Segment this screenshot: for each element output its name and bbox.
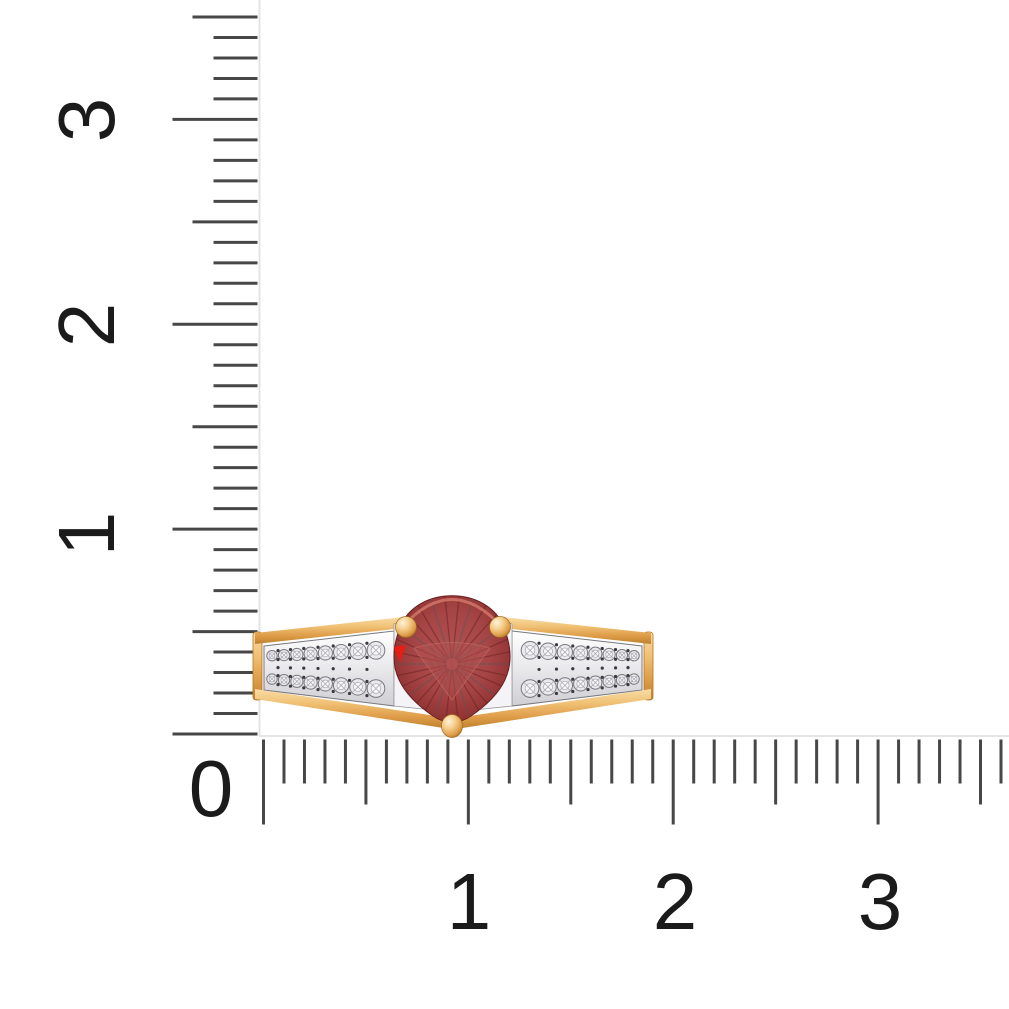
- pave-bead: [348, 667, 351, 670]
- pave-bead: [586, 657, 589, 660]
- prong-top-right: [490, 617, 511, 638]
- pave-bead: [571, 657, 574, 660]
- pave-bead: [365, 642, 368, 645]
- pave-bead: [348, 692, 351, 695]
- pave-bead: [555, 656, 558, 659]
- ruler-label-vertical-3: 3: [47, 98, 127, 143]
- pave-bead: [316, 677, 319, 680]
- ruler-label-origin: 0: [189, 749, 234, 829]
- pave-bead: [601, 667, 604, 670]
- pave-bead: [586, 677, 589, 680]
- pave-bead: [571, 678, 574, 681]
- pave-bead: [302, 667, 305, 670]
- pave-bead: [289, 666, 292, 669]
- ruler-label-horizontal-3: 3: [858, 862, 903, 942]
- pave-bead: [276, 649, 279, 652]
- ruler-label-horizontal-2: 2: [653, 862, 698, 942]
- pave-bead: [537, 680, 540, 683]
- ruler-label-vertical-2: 2: [47, 303, 127, 348]
- pave-bead: [302, 676, 305, 679]
- pave-bead: [316, 657, 319, 660]
- pave-bead: [601, 676, 604, 679]
- pave-bead: [614, 685, 617, 688]
- ring: [253, 582, 653, 745]
- pave-bead: [332, 667, 335, 670]
- pave-bead: [316, 667, 319, 670]
- pave-bead: [537, 642, 540, 645]
- pave-bead: [332, 644, 335, 647]
- pave-bead: [614, 675, 617, 678]
- pave-bead: [276, 674, 279, 677]
- product-photo: 3 2 1 0 1 2 3: [0, 0, 1009, 1009]
- pave-bead: [555, 679, 558, 682]
- pave-bead: [302, 647, 305, 650]
- pave-bead: [302, 657, 305, 660]
- pave-bead: [276, 658, 279, 661]
- pave-bead: [316, 688, 319, 691]
- pave-bead: [332, 657, 335, 660]
- pave-bead: [289, 648, 292, 651]
- pave-bead: [601, 647, 604, 650]
- pave-bead: [365, 680, 368, 683]
- pave-bead: [555, 667, 558, 670]
- pave-bead: [614, 658, 617, 661]
- pave-bead: [537, 694, 540, 697]
- ruler-label-horizontal-1: 1: [447, 862, 492, 942]
- pave-bead: [614, 648, 617, 651]
- pave-bead: [348, 656, 351, 659]
- pave-bead: [571, 644, 574, 647]
- pave-bead: [601, 657, 604, 660]
- pave-bead: [302, 686, 305, 689]
- pave-bead: [626, 658, 629, 661]
- pave-bead: [626, 666, 629, 669]
- pave-bead: [276, 666, 279, 669]
- pave-bead: [614, 666, 617, 669]
- pave-bead: [586, 667, 589, 670]
- pave-bead: [537, 668, 540, 671]
- pave-bead: [555, 692, 558, 695]
- pave-bead: [586, 646, 589, 649]
- pave-bead: [316, 646, 319, 649]
- pave-bead: [332, 690, 335, 693]
- pave-bead: [626, 674, 629, 677]
- pave-bead: [289, 675, 292, 678]
- prong-bottom: [442, 715, 463, 738]
- pave-bead: [537, 656, 540, 659]
- pave-bead: [289, 658, 292, 661]
- pave-bead: [365, 656, 368, 659]
- ruler-label-vertical-1: 1: [47, 512, 127, 557]
- prong-top-left: [396, 617, 417, 638]
- pave-bead: [571, 667, 574, 670]
- pave-bead: [365, 694, 368, 697]
- pave-bead: [586, 688, 589, 691]
- pave-bead: [348, 643, 351, 646]
- pave-bead: [276, 683, 279, 686]
- pave-bead: [555, 643, 558, 646]
- pave-bead: [626, 683, 629, 686]
- pave-bead: [601, 686, 604, 689]
- pave-bead: [289, 685, 292, 688]
- pave-bead: [332, 678, 335, 681]
- pave-bead: [571, 690, 574, 693]
- pave-bead: [626, 649, 629, 652]
- pave-bead: [348, 679, 351, 682]
- pave-bead: [365, 668, 368, 671]
